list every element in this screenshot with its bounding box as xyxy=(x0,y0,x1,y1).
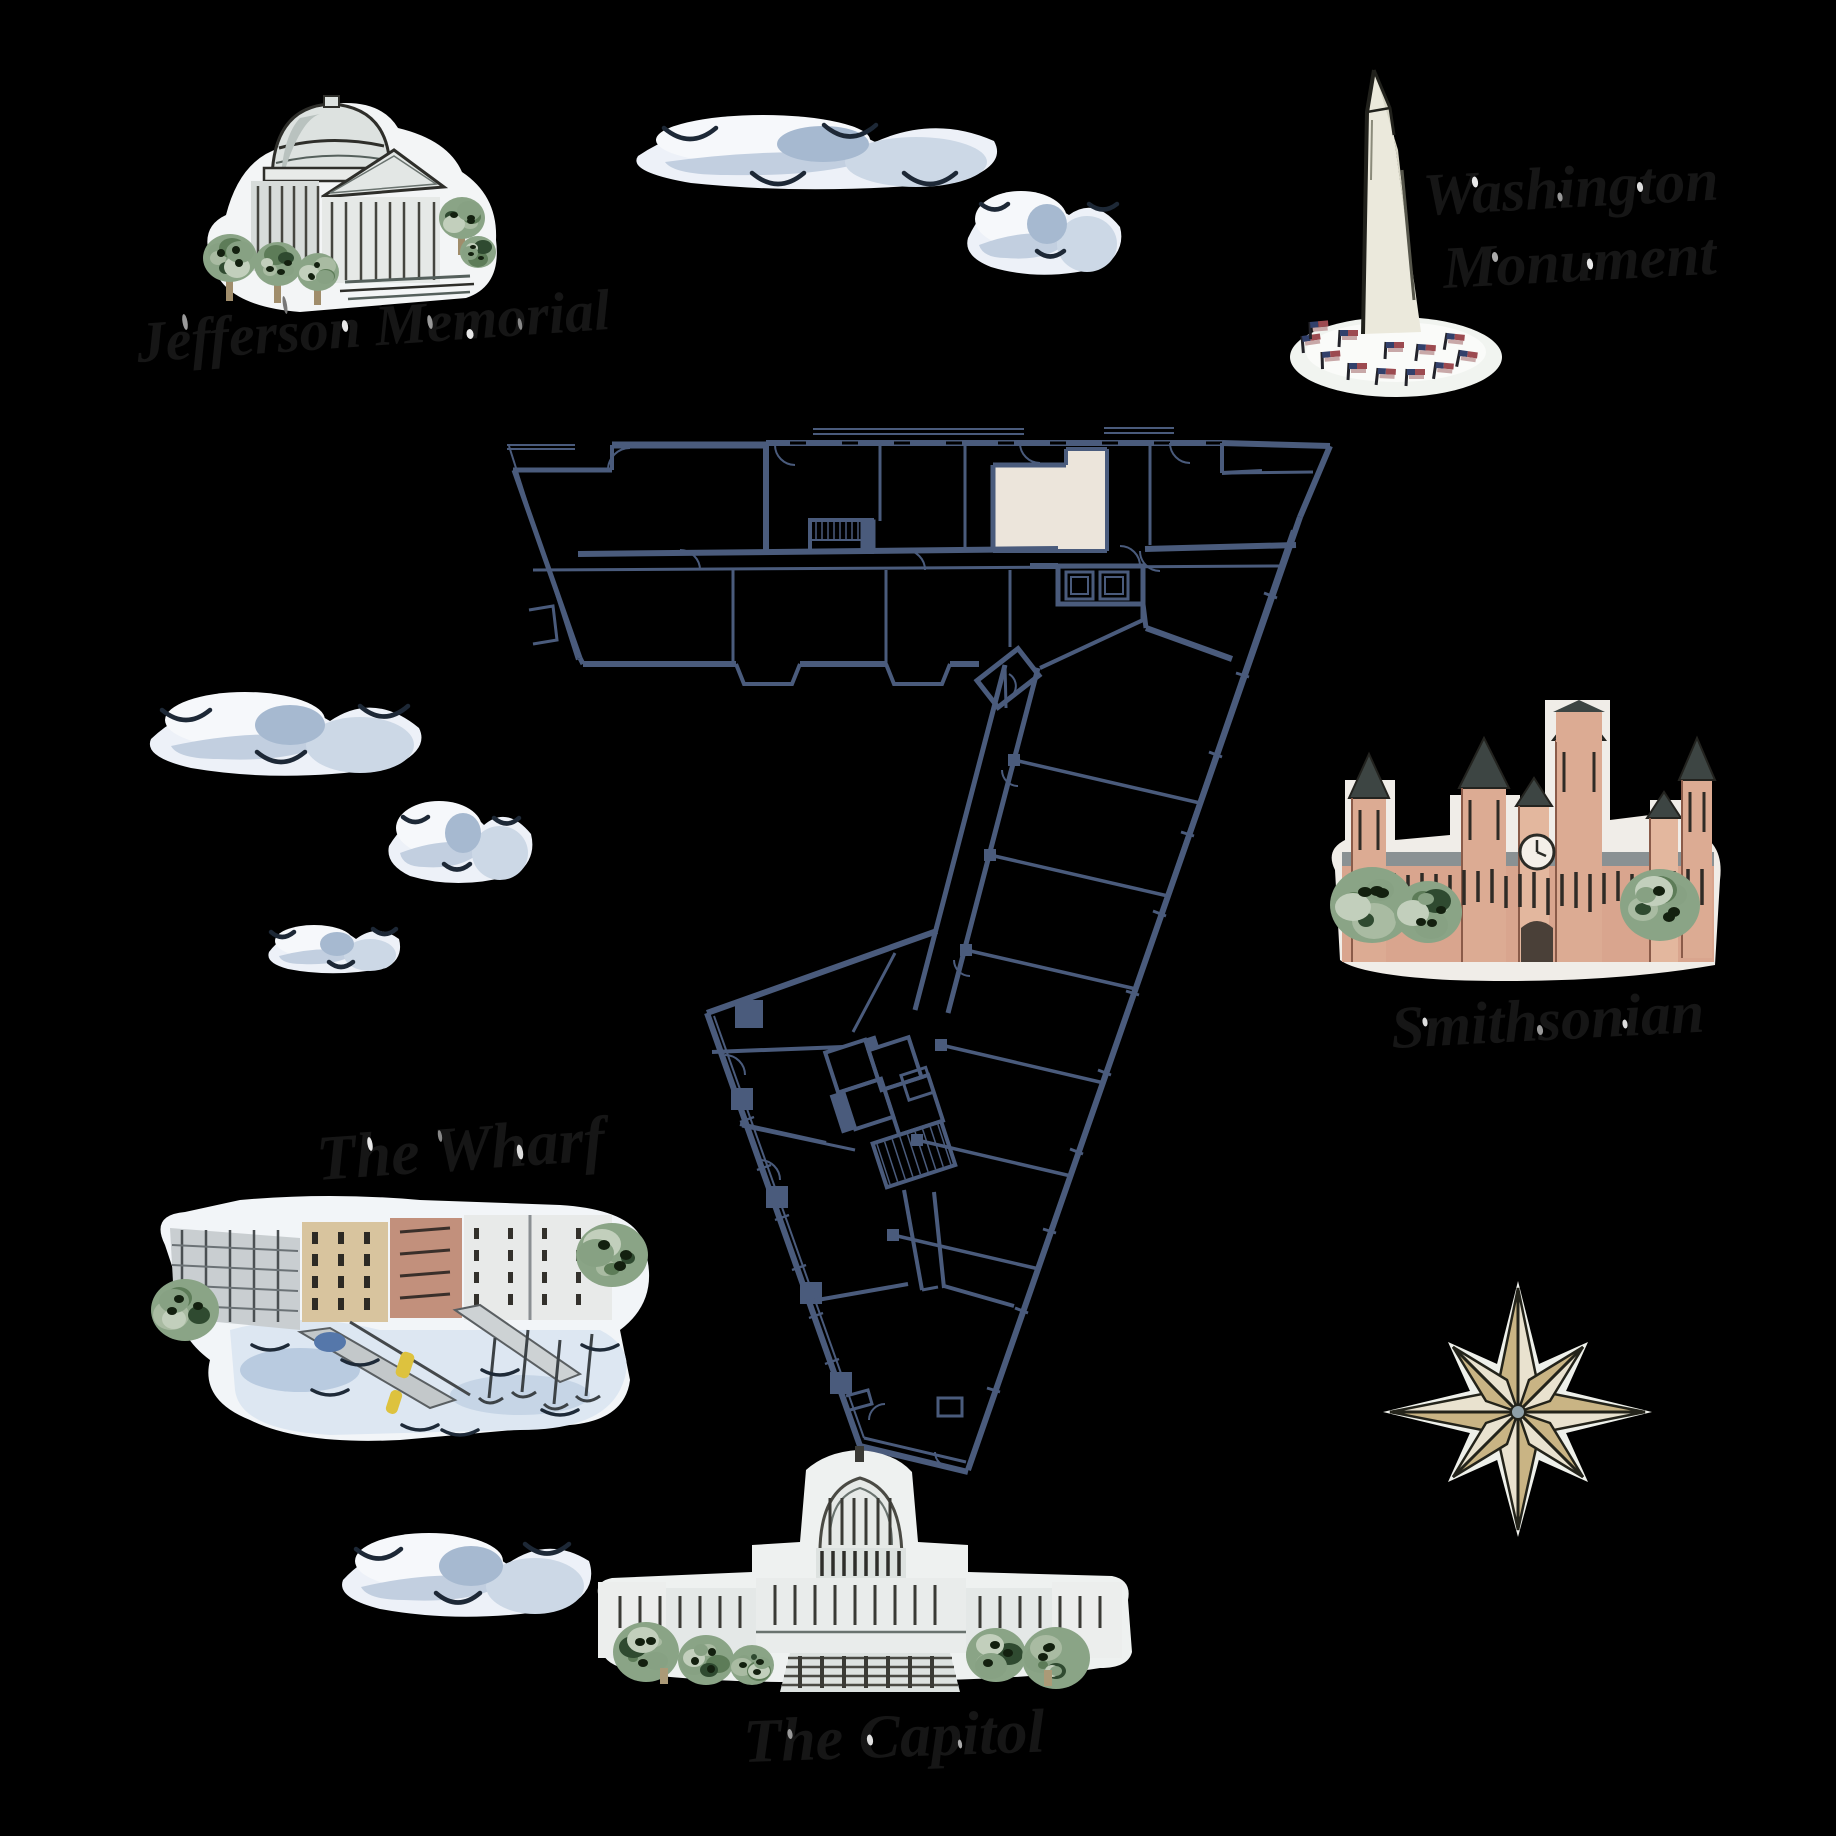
svg-text:The Capitol: The Capitol xyxy=(742,1697,1046,1776)
